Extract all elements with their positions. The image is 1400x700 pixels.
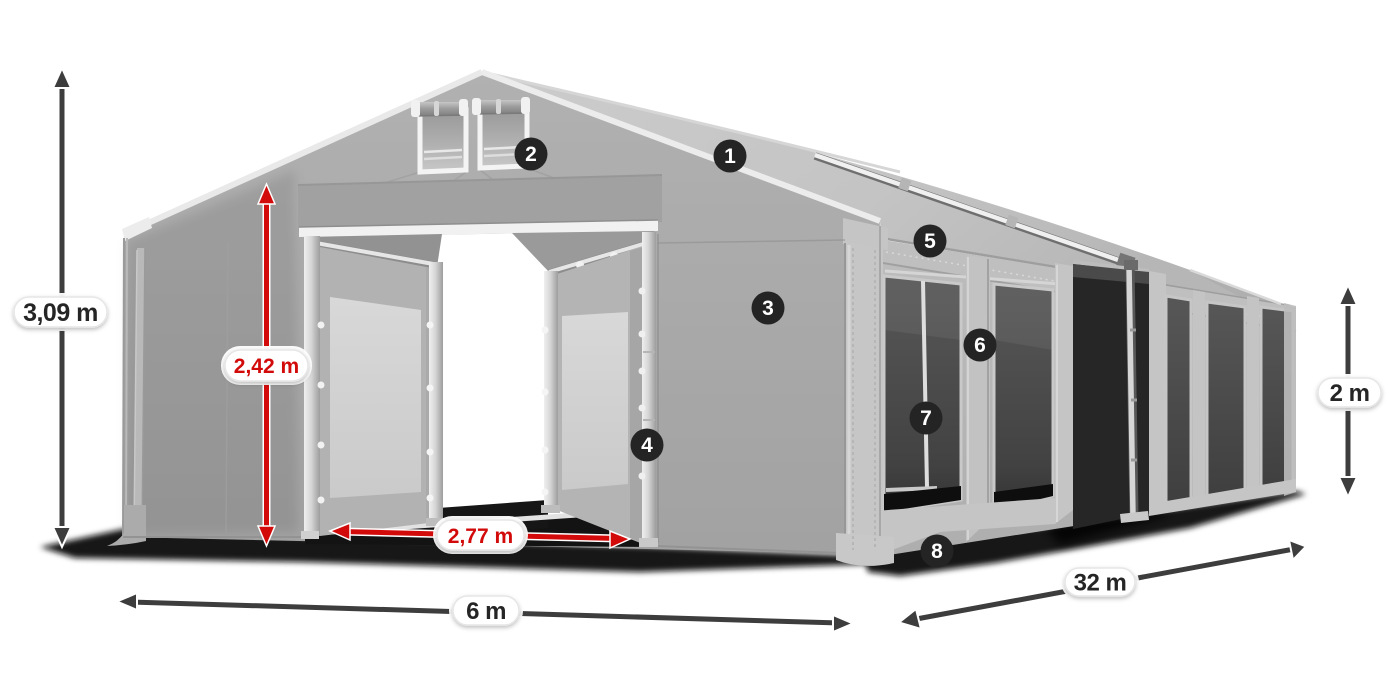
svg-text:6: 6 xyxy=(974,334,986,357)
svg-text:2,42 m: 2,42 m xyxy=(234,355,299,378)
svg-text:2: 2 xyxy=(525,143,537,166)
svg-text:6 m: 6 m xyxy=(466,598,506,625)
svg-text:5: 5 xyxy=(924,230,936,253)
svg-text:32 m: 32 m xyxy=(1074,570,1127,597)
svg-text:4: 4 xyxy=(641,434,653,457)
svg-text:1: 1 xyxy=(724,145,736,168)
svg-text:3,09 m: 3,09 m xyxy=(23,299,98,327)
svg-text:8: 8 xyxy=(931,540,943,563)
svg-text:2 m: 2 m xyxy=(1330,380,1370,407)
svg-text:7: 7 xyxy=(920,407,932,430)
svg-text:2,77 m: 2,77 m xyxy=(448,525,513,548)
svg-text:3: 3 xyxy=(762,297,774,320)
